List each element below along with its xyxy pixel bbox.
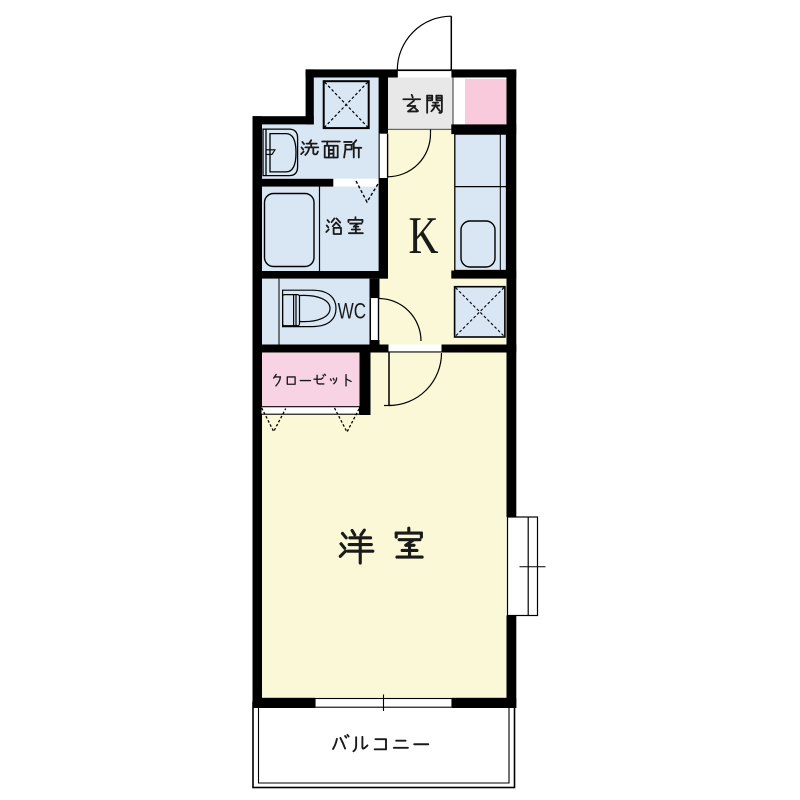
svg-text:WC: WC <box>338 298 367 323</box>
svg-text:K: K <box>409 207 439 265</box>
